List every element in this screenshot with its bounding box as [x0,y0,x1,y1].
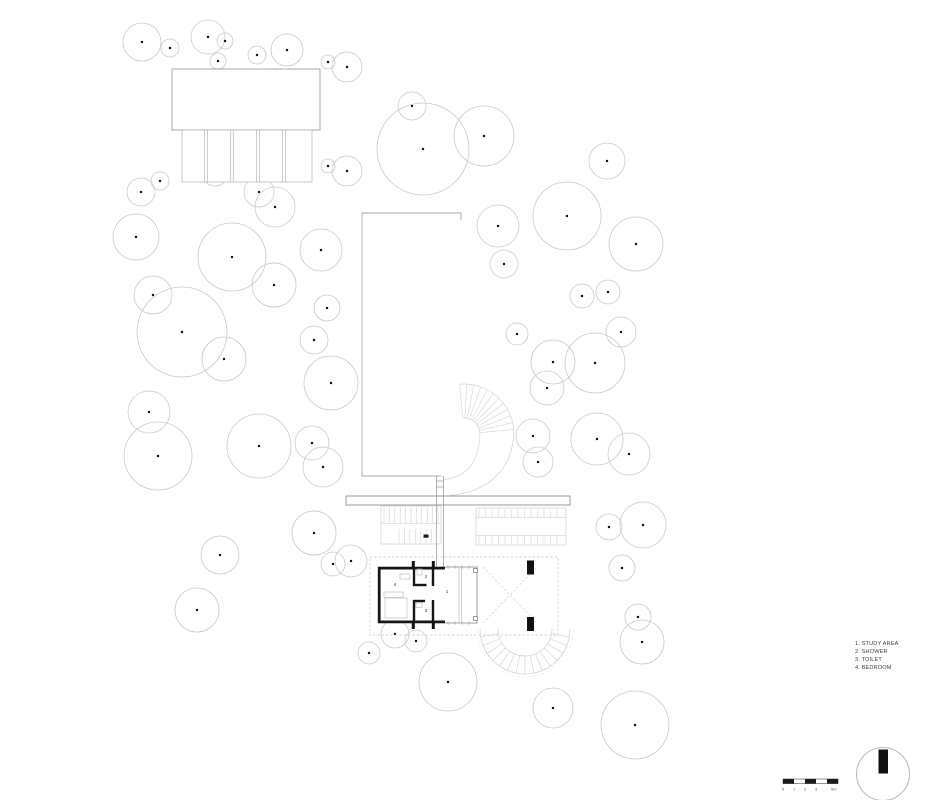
ramp-inner-curve [444,433,480,480]
tree-trunk-dot [169,47,171,49]
door-jamb [412,623,415,629]
tree-trunk-dot [327,165,329,167]
door-jamb [432,561,435,567]
legend-item: 3. TOILET [855,657,899,665]
site-plan: 1234 0 1 2 3 5m [0,0,930,800]
tree-trunk-dot [152,294,154,296]
tree-trunk-dot [196,609,198,611]
scale-tick-label: 5m [831,787,837,792]
stair-tread-line [467,385,474,418]
door-jamb [412,561,415,567]
tree-trunk-dot [330,382,332,384]
semicircular-stair [477,629,573,677]
tree-trunk-dot [546,387,548,389]
tree-trunk-dot [447,681,449,683]
tree-trunk-dot [596,438,598,440]
house-plan: 1234 [378,561,478,629]
walkway [437,476,444,567]
room-number-label: 1 [446,589,449,594]
tree-trunk-dot [327,61,329,63]
footbridge [346,496,570,505]
tree-trunk-dot [148,411,150,413]
tree-trunk-dot [422,148,424,150]
tree-trunk-dot [273,284,275,286]
north-arrow-needle [879,750,889,774]
semicircular-stair-inner-arc [498,629,552,656]
tree-trunk-dot [258,445,260,447]
tree-trunk-dot [274,206,276,208]
stair-tread-line [465,384,467,418]
tree-trunk-dot [350,560,352,562]
legend-item: 2. SHOWER [855,649,899,657]
tree-trunk-dot [497,225,499,227]
carport-structure [172,69,320,182]
semicircular-stair-treads [481,634,570,674]
tree-trunk-dot [219,554,221,556]
tree-trunk-dot [224,40,226,42]
stair-tread-line [480,423,513,431]
stair-treads [384,507,438,543]
tree-trunk-dot [483,135,485,137]
tree-trunk-dot [140,191,142,193]
tree-trunk-dot [620,331,622,333]
stair-tread-line [516,655,520,673]
stair-tread-line [479,416,511,428]
upper-curved-stair [444,384,514,495]
stair-tread-line [550,639,567,646]
tree-trunk-dot [552,361,554,363]
entry-stairs [381,506,441,544]
tree-trunk-dot [207,36,209,38]
stair-tread-line [469,387,480,419]
north-arrow [857,748,910,800]
tree-trunk-dot [322,466,324,468]
stair-tread-line [480,430,514,433]
tree-trunk-dot [594,362,596,364]
timber-deck [476,508,566,545]
tree-trunk-dot [346,66,348,68]
tree-trunk-dot [637,616,639,618]
tree-trunk-dot [181,331,183,333]
room-legend: 1. STUDY AREA 2. SHOWER 3. TOILET 4. BED… [855,641,899,673]
room-number-label: 3 [425,608,428,613]
tree-trunk-dot [311,442,313,444]
carport-roof [172,69,320,130]
tree-trunk-dot [258,191,260,193]
scale-tick-label: 1 [793,787,796,792]
tree-trunk-dot [516,333,518,335]
scale-bar-segment [827,779,838,784]
stair-tread-line [540,651,550,666]
tree-trunk-dot [256,54,258,56]
tree-trunk-dot [159,180,161,182]
tree-trunk-dot [566,215,568,217]
stair-landing-post [424,535,429,538]
carport-bays [182,130,312,182]
tree-trunk-dot [332,563,334,565]
scale-bar: 0 1 2 3 5m [782,779,838,792]
tree-trunk-dot [346,170,348,172]
stair-tread-line [483,639,500,646]
tree-trunk-dot [503,263,505,265]
house-floor-slab [378,567,477,623]
stair-tread-line [487,644,502,654]
tree-trunk-dot [606,160,608,162]
tree-trunk-dot [641,641,643,643]
ramp-outer-curve [450,430,514,496]
tree-trunk-dot [635,243,637,245]
tree-trunk-dot [621,567,623,569]
stair-tread-line [500,651,510,666]
stair-tread-line [475,398,499,422]
legend-item: 1. STUDY AREA [855,641,899,649]
room-number-label: 2 [425,574,428,579]
tree-trunk-dot [634,724,636,726]
stair-tread-line [460,384,463,418]
scale-tick-label: 2 [804,787,807,792]
tree-trunk-dot [628,453,630,455]
tree-trunk-dot [286,49,288,51]
corner-post [474,617,478,621]
tree-trunk-dot [313,339,315,341]
door-jamb [432,623,435,629]
tree-trunk-dot [313,532,315,534]
tree-trunk-dot [537,461,539,463]
upper-stair-treads [460,384,514,433]
tree-trunk-dot [157,455,159,457]
tree-trunk-dot [411,105,413,107]
tree-trunk-dot [642,524,644,526]
scale-tick-label: 0 [782,787,785,792]
stair-tread-line [530,655,534,673]
tree-trunk-dot [532,435,534,437]
deck-outline [476,508,566,545]
legend-item: 4. BEDROOM [855,665,899,673]
tree-trunk-dot [368,652,370,654]
tree-trunk-dot [415,640,417,642]
tree-trunk-dot [217,60,219,62]
courtyard-wall [362,213,461,476]
roof-column [527,561,534,575]
tree-trunk-dot [552,707,554,709]
tree-trunk-dot [320,249,322,251]
room-number-label: 4 [394,582,397,587]
scale-bar-segment [783,779,794,784]
tree-trunk-dot [326,307,328,309]
tree-trunk-dot [223,358,225,360]
tree-trunk-dot [231,256,233,258]
scale-tick-label: 3 [815,787,818,792]
stair-tread-line [508,654,515,671]
stair-tread-line [493,648,506,661]
scale-bar-segment [805,779,816,784]
stair-tread-line [535,654,542,671]
tree-trunk-dot [581,295,583,297]
corner-post [474,569,478,573]
tree-trunk-dot [141,41,143,43]
stair-tread-line [548,644,563,654]
tree-trunk-dot [135,236,137,238]
deck-plank-hatch [479,509,557,544]
stair-tread-line [544,648,557,661]
tree-trunk-dot [607,291,609,293]
tree-trunk-dot [608,526,610,528]
roof-column [527,617,534,631]
